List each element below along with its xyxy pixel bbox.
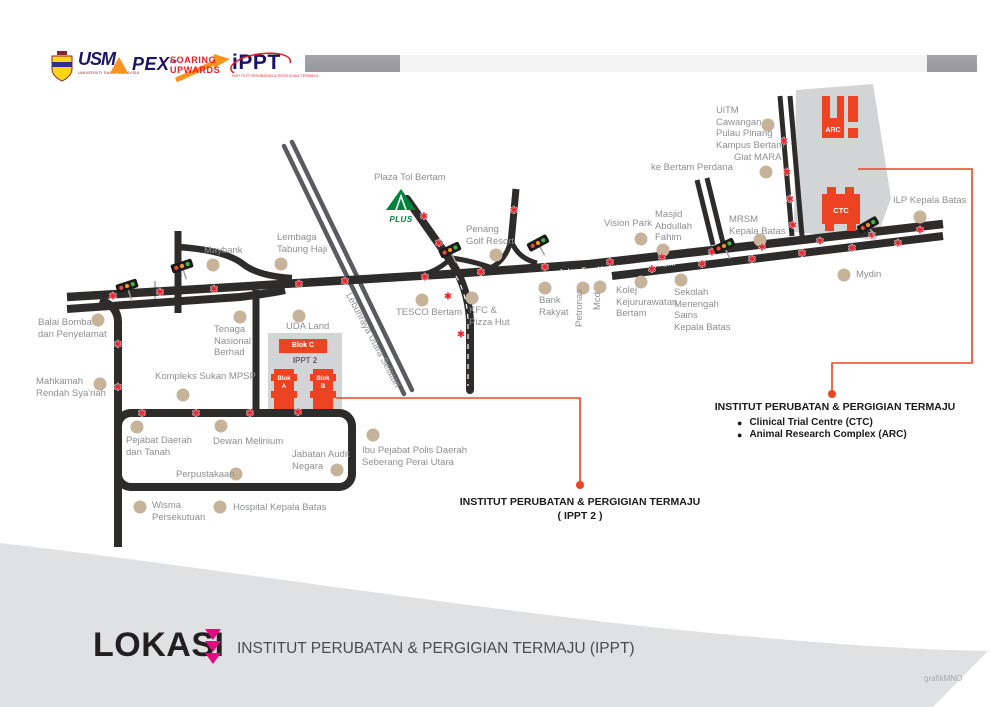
road-marker-icon: ✱ <box>916 226 924 237</box>
apex-logo: PEXTM <box>110 54 177 75</box>
bullet-icon: ● <box>737 417 742 429</box>
header-bar-light <box>400 55 927 72</box>
place-dot <box>214 501 227 514</box>
place-dot <box>134 501 147 514</box>
road-marker-icon: ✱ <box>420 212 428 223</box>
road-marker-icon: ✱ <box>748 255 756 266</box>
road-marker-icon: ✱ <box>648 265 656 276</box>
callout-ctc-arc-bullets: ●Clinical Trial Centre (CTC) ●Animal Res… <box>737 417 907 441</box>
road-marker-icon: ✱ <box>758 243 766 254</box>
header-bar-dark-right <box>927 55 977 72</box>
place-dot <box>838 269 851 282</box>
page-subtitle: INSTITUT PERUBATAN & PERGIGIAN TERMAJU (… <box>237 640 635 658</box>
location-map-page: Jalan Tun Hamdan Sheikh Tahir <box>0 0 1000 707</box>
road-marker-icon: ✱ <box>798 249 806 260</box>
road-marker-icon: ✱ <box>435 239 443 250</box>
callout-ippt2-subtitle: ( IPPT 2 ) <box>430 510 730 522</box>
place-dot <box>914 211 927 224</box>
bullet-icon: ● <box>737 429 742 441</box>
place-dot <box>230 468 243 481</box>
road-marker-icon: ✱ <box>114 383 122 394</box>
place-dot <box>131 421 144 434</box>
road-marker-icon: ✱ <box>457 330 465 341</box>
road-marker-icon: ✱ <box>114 340 122 351</box>
road-marker-icon: ✱ <box>894 239 902 250</box>
place-dot <box>594 281 607 294</box>
place-dot <box>577 282 590 295</box>
road-marker-icon: ✱ <box>421 273 429 284</box>
road-marker-icon: ✱ <box>783 168 791 179</box>
road-marker-icon: ✱ <box>816 237 824 248</box>
soaring-upwards-logo: SOARING UPWARDS <box>170 52 232 86</box>
road-marker-icon: ✱ <box>786 195 794 206</box>
road-marker-icon: ✱ <box>246 409 254 420</box>
place-dot <box>331 464 344 477</box>
road-marker-icon: ✱ <box>295 280 303 291</box>
road-marker-icon: ✱ <box>658 253 666 264</box>
place-dot <box>675 274 688 287</box>
callout-ctc-arc-title: INSTITUT PERUBATAN & PERGIGIAN TERMAJU <box>695 401 975 413</box>
road-marker-icon: ✱ <box>341 277 349 288</box>
footer-band-shape <box>0 543 988 707</box>
soaring-line1: SOARING <box>170 55 216 65</box>
place-dot <box>762 119 775 132</box>
map-canvas: Jalan Tun Hamdan Sheikh Tahir <box>0 0 1000 707</box>
road-marker-icon: ✱ <box>698 260 706 271</box>
usm-crest-icon <box>50 50 74 83</box>
place-dot <box>215 420 228 433</box>
triangle-down-icon <box>205 653 221 664</box>
bullet-arc: Animal Research Complex (ARC) <box>749 429 906 441</box>
place-dot <box>416 294 429 307</box>
place-dot <box>275 258 288 271</box>
road-marker-icon: ✱ <box>156 288 164 299</box>
credit-text: grafikMNO <box>924 674 962 683</box>
place-dot <box>635 233 648 246</box>
road-marker-icon: ✱ <box>477 268 485 279</box>
place-dot <box>760 166 773 179</box>
road-marker-icon: ✱ <box>294 408 302 419</box>
road-marker-icon: ✱ <box>444 292 452 303</box>
road-marker-icon: ✱ <box>848 244 856 255</box>
place-dot <box>539 282 552 295</box>
road-marker-icon: ✱ <box>510 206 518 217</box>
traffic-light-icon <box>526 234 554 261</box>
road-marker-icon: ✱ <box>780 137 788 148</box>
road-marker-icon: ✱ <box>192 409 200 420</box>
road-marker-icon: ✱ <box>138 409 146 420</box>
soaring-line2: UPWARDS <box>170 65 220 75</box>
triangle-down-icon <box>205 641 221 652</box>
triangle-down-icon <box>205 629 221 640</box>
callout-ippt2-title: INSTITUT PERUBATAN & PERGIGIAN TERMAJU <box>430 496 730 508</box>
ippt-swoosh-icon <box>228 49 294 79</box>
bullet-ctc: Clinical Trial Centre (CTC) <box>749 417 872 429</box>
header-bar-dark-left <box>305 55 400 72</box>
road-marker-icon: ✱ <box>606 258 614 269</box>
plus-emblem-icon <box>384 188 418 212</box>
place-dot <box>635 276 648 289</box>
title-triangles-icon <box>205 629 221 664</box>
place-dot <box>466 292 479 305</box>
arc-building <box>822 96 858 138</box>
place-dot <box>293 310 306 323</box>
road-marker-icon: ✱ <box>210 285 218 296</box>
place-dot <box>367 429 380 442</box>
arc-building-notch <box>830 96 837 118</box>
traffic-light-icon <box>170 258 197 282</box>
place-dot <box>94 378 107 391</box>
place-dot <box>207 259 220 272</box>
plus-logo-label: PLUS <box>384 215 418 224</box>
place-dot <box>234 311 247 324</box>
place-dot <box>177 389 190 402</box>
place-dot <box>92 314 105 327</box>
road-marker-icon: ✱ <box>789 221 797 232</box>
callout-leader-ippt2 <box>336 398 584 489</box>
road-marker-icon: ✱ <box>109 292 117 303</box>
place-dot <box>490 249 503 262</box>
plus-highway-logo: PLUS <box>384 188 418 224</box>
road-marker-icon: ✱ <box>541 263 549 274</box>
apex-triangle-icon <box>110 57 128 73</box>
